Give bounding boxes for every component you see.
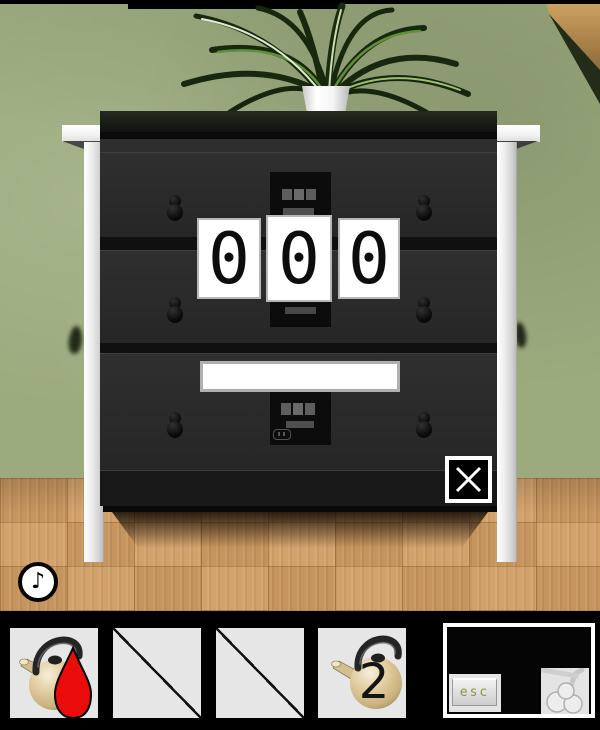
inventory-slot-esc-scene[interactable]: esc [443, 623, 595, 718]
knob-top-right [415, 195, 433, 224]
knob-bottom-left [166, 412, 184, 441]
knob-middle-left [166, 297, 184, 326]
dresser-front-rail [100, 139, 497, 152]
dresser-floor-shadow [112, 512, 488, 548]
lock-button [282, 189, 292, 200]
code-digit-2: 0 [278, 224, 320, 294]
kettle-count-icon: 2 [318, 628, 406, 718]
lock-button [294, 189, 304, 200]
code-enter-bar[interactable] [200, 361, 400, 392]
code-dial-2[interactable]: 0 [266, 215, 332, 302]
esc-scene-steam-area [541, 668, 589, 714]
inventory-bar: 2 esc [0, 611, 600, 730]
lock-button [305, 403, 315, 415]
close-x-icon [449, 460, 488, 499]
lock-button [281, 403, 291, 415]
dresser-top-edge [100, 132, 497, 139]
knob-bottom-right [415, 412, 433, 441]
kettle-count-badge: 2 [359, 654, 390, 710]
esc-scene-left-area: esc [449, 674, 501, 712]
close-button[interactable] [445, 456, 492, 503]
drawer-zoom-view: 0 0 0 [100, 111, 497, 505]
inventory-slot-kettle-red[interactable] [10, 628, 98, 718]
code-digit-3: 0 [348, 224, 390, 294]
dresser-top-surface [100, 111, 497, 132]
inventory-slot-empty-1[interactable] [113, 628, 201, 718]
lock-slit [283, 208, 314, 215]
lock-button [306, 189, 316, 200]
outlet-mark [273, 429, 291, 440]
dresser-leg-right [497, 142, 517, 562]
dresser-plinth [100, 470, 497, 506]
esc-key-icon: esc [452, 678, 497, 706]
lock-slit [285, 307, 316, 314]
knob-middle-right [415, 297, 433, 326]
inventory-slot-empty-2[interactable] [216, 628, 304, 718]
code-digit-1: 0 [208, 224, 250, 294]
music-toggle-button[interactable]: ♪ [18, 562, 58, 602]
inventory-slot-kettle-2[interactable]: 2 [318, 628, 406, 718]
lock-button [293, 403, 303, 415]
music-note-icon: ♪ [31, 569, 45, 594]
game-stage: 0 0 0 ♪ [0, 0, 600, 730]
knob-top-left [166, 195, 184, 224]
esc-key-label: esc [460, 685, 489, 700]
code-dial-1[interactable]: 0 [197, 218, 261, 299]
kettle-red-liquid-icon [10, 628, 98, 718]
code-dial-3[interactable]: 0 [338, 218, 400, 299]
lock-slit [286, 421, 314, 428]
lock-mechanism-lower [270, 392, 331, 445]
steam-cloud-icon [541, 668, 589, 714]
